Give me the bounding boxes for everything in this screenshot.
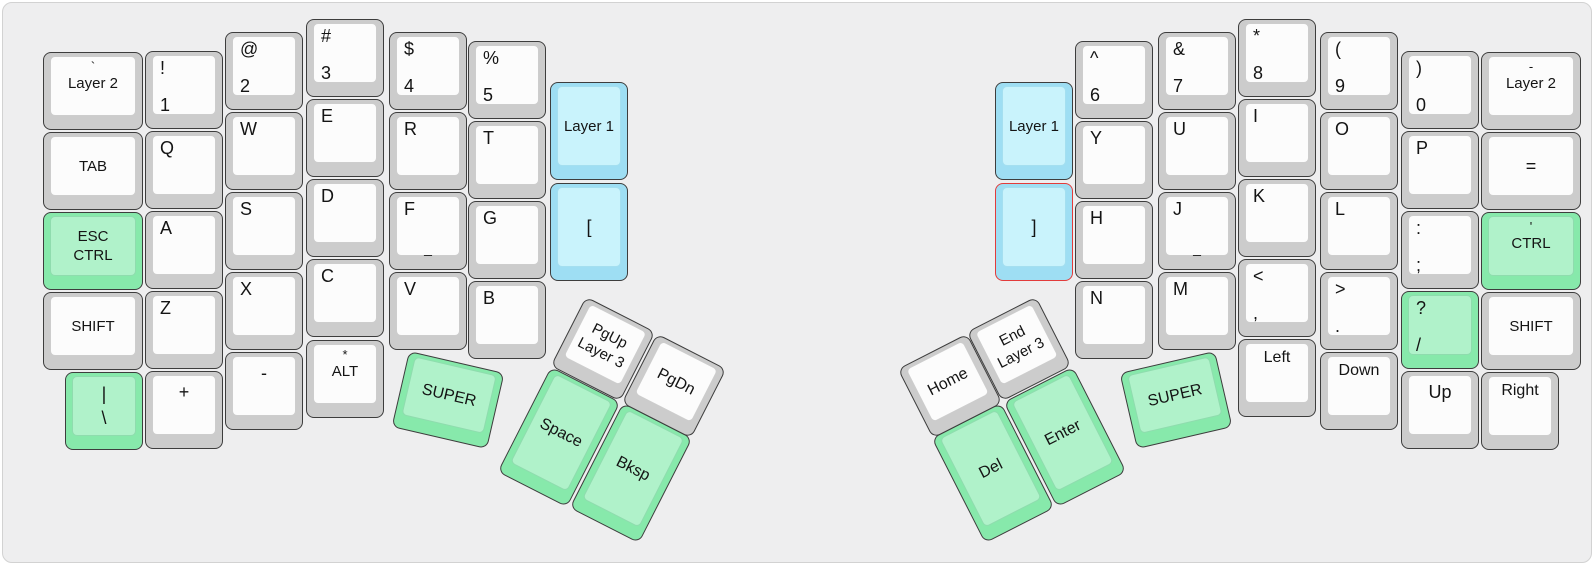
key-plus[interactable]: + [145, 371, 223, 449]
key-legend-line: 0 [1416, 95, 1426, 116]
keycap-top: R [396, 116, 460, 176]
key-legend-line: Left [1264, 348, 1291, 368]
keycap-top: !1 [152, 55, 216, 115]
key-legend: B [483, 288, 495, 309]
keycap-top: #3 [313, 23, 377, 83]
key-shift-right[interactable]: SHIFT [1481, 292, 1581, 370]
key-legend-line: ] [1031, 215, 1036, 239]
key-legend-line: Layer 2 [68, 74, 118, 93]
key-legend: ^6 [1090, 48, 1100, 106]
key-legend: TAB [51, 137, 135, 195]
key-legend-line: 4 [404, 76, 414, 97]
key-legend-line: K [1253, 186, 1265, 207]
key-legend-line: Bksp [613, 452, 653, 485]
key-legend: [ [558, 188, 620, 266]
key-legend: Y [1090, 128, 1102, 149]
key-legend-line: > [1335, 279, 1346, 300]
key-legend: -Layer 2 [1489, 57, 1573, 115]
key-legend-line: \ [101, 406, 106, 430]
key-g[interactable]: G [468, 201, 546, 279]
key-legend-line: Layer 2 [1506, 74, 1556, 93]
keycap-top: T [475, 125, 539, 185]
key-legend-line: ) [1416, 58, 1422, 79]
key-legend: F [404, 199, 415, 220]
key-legend: <, [1253, 266, 1264, 324]
key-legend: H [1090, 208, 1103, 229]
key-legend-line: Home [924, 363, 971, 399]
keycap-top: Layer 1 [1002, 86, 1066, 166]
key-legend: )0 [1416, 58, 1426, 116]
key-legend: Q [160, 138, 174, 159]
key-legend-line: * [1253, 26, 1260, 47]
key-layer1-left[interactable]: Layer 1 [550, 82, 628, 180]
keycap-top: U [1165, 116, 1229, 176]
key-legend-line: SUPER [420, 380, 478, 411]
key-n[interactable]: N [1075, 281, 1153, 359]
key-period[interactable]: >. [1320, 272, 1398, 350]
key-legend-line: F [404, 199, 415, 220]
key-legend: = [1489, 137, 1573, 195]
key-legend: ?/ [1416, 298, 1426, 356]
keycap-top: B [475, 285, 539, 345]
key-k[interactable]: K [1238, 179, 1316, 257]
keycap-top: W [232, 116, 296, 176]
key-z[interactable]: Z [145, 291, 223, 369]
key-super-left[interactable]: SUPER [391, 351, 504, 449]
key-d[interactable]: D [306, 179, 384, 257]
key-legend: ] [1003, 188, 1065, 266]
key-legend-line: P [1416, 138, 1428, 159]
key-legend: J [1173, 199, 1182, 220]
keycap-top: G [475, 205, 539, 265]
key-legend-line: 8 [1253, 63, 1263, 84]
key-legend-line: V [404, 279, 416, 300]
keycap-top: + [152, 375, 216, 435]
key-legend-line: G [483, 208, 497, 229]
key-legend: 'CTRL [1489, 217, 1573, 275]
key-arrow-left[interactable]: Left [1238, 339, 1316, 417]
key-legend-line: 7 [1173, 76, 1183, 97]
keycap-top: Left [1245, 343, 1309, 403]
keycap-top: SHIFT [50, 296, 136, 356]
keycap-top: @2 [232, 36, 296, 96]
key-8[interactable]: *8 [1238, 19, 1316, 97]
keycap-top: X [232, 276, 296, 336]
key-legend-line: CTRL [73, 246, 112, 265]
key-h[interactable]: H [1075, 201, 1153, 279]
key-s[interactable]: S [225, 192, 303, 270]
key-legend-line: 6 [1090, 85, 1100, 106]
key-legend: G [483, 208, 497, 229]
keycap-top: = [1488, 136, 1574, 196]
keycap-top: C [313, 263, 377, 323]
keycap-top: Y [1082, 125, 1146, 185]
keycap-top: J_ [1165, 196, 1229, 256]
key-e[interactable]: E [306, 99, 384, 177]
keycap-top: L [1327, 196, 1391, 256]
key-legend-line: TAB [79, 157, 107, 176]
key-legend: - [233, 357, 295, 415]
key-t[interactable]: T [468, 121, 546, 199]
key-legend: PgDn [635, 342, 717, 422]
key-r[interactable]: R [389, 112, 467, 190]
keycap-top: Down [1327, 356, 1391, 416]
keyboard-layout-canvas: `Layer 2TABESCCTRLSHIFT|\!1QAZ+@2WSX-#3E… [0, 0, 1596, 567]
key-legend-line: X [240, 279, 252, 300]
key-legend-line: Layer 1 [1009, 117, 1059, 136]
key-legend-line: S [240, 199, 252, 220]
key-legend-line: & [1173, 39, 1185, 60]
key-minus[interactable]: - [225, 352, 303, 430]
key-arrow-up[interactable]: Up [1401, 371, 1479, 449]
key-legend-line: O [1335, 119, 1349, 140]
key-legend: R [404, 119, 417, 140]
key-pipe-backslash[interactable]: |\ [65, 372, 143, 450]
key-homing-mark: _ [397, 242, 459, 255]
key-a[interactable]: A [145, 211, 223, 289]
keycap-top: ^6 [1082, 45, 1146, 105]
key-legend-line: ( [1335, 39, 1341, 60]
key-legend-line: C [321, 266, 334, 287]
key-legend: K [1253, 186, 1265, 207]
key-legend: Down [1328, 357, 1390, 415]
key-legend-line: 9 [1335, 76, 1345, 97]
key-legend: C [321, 266, 334, 287]
key-legend: O [1335, 119, 1349, 140]
key-lbracket[interactable]: [ [550, 183, 628, 281]
keycap-top: SUPER [401, 356, 496, 433]
keycap-top: >. [1327, 276, 1391, 336]
key-shift-left[interactable]: SHIFT [43, 292, 143, 370]
keycap-top: - [232, 356, 296, 416]
key-legend-line: , [1253, 303, 1258, 324]
key-legend-line: + [179, 380, 190, 404]
key-layer2-right[interactable]: -Layer 2 [1481, 52, 1581, 130]
key-legend: &7 [1173, 39, 1185, 97]
key-p[interactable]: P [1401, 131, 1479, 209]
keycap-top: -Layer 2 [1488, 56, 1574, 116]
key-rbracket[interactable]: ] [995, 183, 1073, 281]
key-u[interactable]: U [1158, 112, 1236, 190]
key-legend-line: SHIFT [1509, 317, 1552, 336]
key-homing-mark: _ [1166, 242, 1228, 255]
key-legend-line: H [1090, 208, 1103, 229]
key-legend-line: J [1173, 199, 1182, 220]
keycap-top: K [1245, 183, 1309, 243]
keycap-top: EndLayer 3 [975, 303, 1059, 386]
key-legend: Home [907, 342, 989, 422]
keycap-top: PgDn [634, 340, 718, 423]
keycap-top: SUPER [1127, 356, 1222, 433]
key-legend: SHIFT [1489, 297, 1573, 355]
key-5[interactable]: %5 [468, 41, 546, 119]
keycap-top: 'CTRL [1488, 216, 1574, 276]
keycap-top: )0 [1408, 55, 1472, 115]
key-legend: (9 [1335, 39, 1345, 97]
keycap-top: <, [1245, 263, 1309, 323]
keycap-top: `Layer 2 [50, 56, 136, 116]
key-legend: *ALT [314, 345, 376, 403]
keycap-top: Z [152, 295, 216, 355]
key-legend-line: [ [586, 215, 591, 239]
keycap-top: M [1165, 276, 1229, 336]
key-legend-line: SUPER [1146, 380, 1204, 411]
keycap-top: ] [1002, 187, 1066, 267]
key-legend-line: $ [404, 39, 414, 60]
key-legend-line: < [1253, 266, 1264, 287]
key-legend: %5 [483, 48, 499, 106]
key-legend: Z [160, 298, 171, 319]
key-legend-line: CTRL [1511, 234, 1550, 253]
keycap-top: A [152, 215, 216, 275]
key-legend-line: . [1335, 316, 1340, 337]
key-legend: PgUpLayer 3 [564, 305, 646, 385]
key-arrow-down[interactable]: Down [1320, 352, 1398, 430]
keycap-top: D [313, 183, 377, 243]
key-legend-small: - [1529, 59, 1533, 74]
key-7[interactable]: &7 [1158, 32, 1236, 110]
key-legend-line: = [1526, 154, 1537, 178]
keycap-top: V [396, 276, 460, 336]
keyboard-panel: `Layer 2TABESCCTRLSHIFT|\!1QAZ+@2WSX-#3E… [2, 2, 1592, 563]
key-legend: >. [1335, 279, 1346, 337]
key-legend-line: Right [1501, 381, 1538, 401]
key-legend: Right [1489, 377, 1551, 435]
key-legend: M [1173, 279, 1188, 300]
key-legend-line: Down [1339, 361, 1380, 381]
key-alt[interactable]: *ALT [306, 340, 384, 418]
keycap-top: Q [152, 135, 216, 195]
key-legend-line: U [1173, 119, 1186, 140]
key-v[interactable]: V [389, 272, 467, 350]
key-i[interactable]: I [1238, 99, 1316, 177]
key-legend-line: A [160, 218, 172, 239]
key-legend: V [404, 279, 416, 300]
key-2[interactable]: @2 [225, 32, 303, 110]
key-esc-ctrl[interactable]: ESCCTRL [43, 212, 143, 290]
key-legend: E [321, 106, 333, 127]
keycap-top: %5 [475, 45, 539, 105]
keycap-top: [ [557, 187, 621, 267]
key-q[interactable]: Q [145, 131, 223, 209]
key-legend: |\ [73, 377, 135, 435]
key-super-right[interactable]: SUPER [1119, 351, 1232, 449]
key-legend: A [160, 218, 172, 239]
keycap-top: H [1082, 205, 1146, 265]
key-legend: SHIFT [51, 297, 135, 355]
key-legend: Layer 1 [1003, 87, 1065, 165]
keycap-top: ESCCTRL [50, 216, 136, 276]
key-legend-line: SHIFT [71, 317, 114, 336]
key-legend-line: PgDn [654, 364, 698, 399]
key-j[interactable]: J_ [1158, 192, 1236, 270]
key-legend-line: Up [1428, 380, 1451, 404]
key-legend-line: 1 [160, 95, 170, 116]
keycap-top: P [1408, 135, 1472, 195]
key-legend: !1 [160, 58, 170, 116]
key-legend-line: M [1173, 279, 1188, 300]
keycap-top: SHIFT [1488, 296, 1574, 356]
key-legend: I [1253, 106, 1258, 127]
keycap-top: S [232, 196, 296, 256]
keycap-top: $4 [396, 36, 460, 96]
key-layer2-left[interactable]: `Layer 2 [43, 52, 143, 130]
key-legend: #3 [321, 26, 331, 84]
key-legend: X [240, 279, 252, 300]
key-legend: EndLayer 3 [976, 305, 1058, 385]
key-tab[interactable]: TAB [43, 132, 143, 210]
key-legend-line: Layer 1 [564, 117, 614, 136]
key-legend-small: * [342, 347, 347, 362]
key-legend: Left [1246, 344, 1308, 402]
key-legend-line: N [1090, 288, 1103, 309]
key-legend-line: ? [1416, 298, 1426, 319]
key-legend-line: % [483, 48, 499, 69]
key-equals[interactable]: = [1481, 132, 1581, 210]
key-legend-line: R [404, 119, 417, 140]
key-legend: SUPER [403, 358, 496, 433]
key-legend-line: T [483, 128, 494, 149]
key-b[interactable]: B [468, 281, 546, 359]
key-legend-line: Del [976, 455, 1006, 483]
keycap-top: &7 [1165, 36, 1229, 96]
key-legend-line: @ [240, 39, 258, 60]
key-layer1-right[interactable]: Layer 1 [995, 82, 1073, 180]
key-legend-line: / [1416, 335, 1421, 356]
key-1[interactable]: !1 [145, 51, 223, 129]
key-legend-line: Y [1090, 128, 1102, 149]
key-y[interactable]: Y [1075, 121, 1153, 199]
keycap-top: I [1245, 103, 1309, 163]
key-legend: N [1090, 288, 1103, 309]
key-legend-line: B [483, 288, 495, 309]
key-legend: S [240, 199, 252, 220]
keycap-top: |\ [72, 376, 136, 436]
key-3[interactable]: #3 [306, 19, 384, 97]
key-w[interactable]: W [225, 112, 303, 190]
keycap-top: PgUpLayer 3 [563, 303, 647, 386]
key-legend: D [321, 186, 334, 207]
key-legend-line: L [1335, 199, 1345, 220]
key-legend-line: E [321, 106, 333, 127]
keycap-top: N [1082, 285, 1146, 345]
key-6[interactable]: ^6 [1075, 41, 1153, 119]
keycap-top: O [1327, 116, 1391, 176]
key-legend-line: D [321, 186, 334, 207]
key-legend-line: Q [160, 138, 174, 159]
key-legend: Layer 1 [558, 87, 620, 165]
key-legend-line: I [1253, 106, 1258, 127]
key-4[interactable]: $4 [389, 32, 467, 110]
key-legend: T [483, 128, 494, 149]
key-legend: :; [1416, 218, 1421, 276]
key-l[interactable]: L [1320, 192, 1398, 270]
key-legend-line: ^ [1090, 48, 1098, 69]
key-legend: Up [1409, 376, 1471, 434]
key-c[interactable]: C [306, 259, 384, 337]
key-x[interactable]: X [225, 272, 303, 350]
key-legend: `Layer 2 [51, 57, 135, 115]
key-legend: @2 [240, 39, 258, 97]
keycap-top: Up [1408, 375, 1472, 435]
keycap-top: ?/ [1408, 295, 1472, 355]
key-legend-line: : [1416, 218, 1421, 239]
key-legend-small: ` [91, 59, 95, 74]
key-legend: *8 [1253, 26, 1263, 84]
key-comma[interactable]: <, [1238, 259, 1316, 337]
key-legend-line: 5 [483, 85, 493, 106]
key-semicolon[interactable]: :; [1401, 211, 1479, 289]
keycap-top: *ALT [313, 344, 377, 404]
key-legend-line: ALT [332, 362, 358, 381]
keycap-top: Right [1488, 376, 1552, 436]
key-arrow-right[interactable]: Right [1481, 372, 1559, 450]
keycap-top: F_ [396, 196, 460, 256]
keycap-top: *8 [1245, 23, 1309, 83]
key-legend-line: ! [160, 58, 165, 79]
key-legend-line: ESC [78, 227, 109, 246]
key-legend-line: ; [1416, 255, 1421, 276]
key-0[interactable]: )0 [1401, 51, 1479, 129]
keycap-top: (9 [1327, 36, 1391, 96]
key-legend-line: Z [160, 298, 171, 319]
keycap-top: :; [1408, 215, 1472, 275]
key-legend-small: ' [1530, 219, 1532, 234]
key-legend: P [1416, 138, 1428, 159]
key-legend-line: W [240, 119, 257, 140]
key-legend: L [1335, 199, 1345, 220]
keycap-top: E [313, 103, 377, 163]
key-legend: ESCCTRL [51, 217, 135, 275]
key-legend: W [240, 119, 257, 140]
key-slash[interactable]: ?/ [1401, 291, 1479, 369]
key-legend-line: Enter [1041, 415, 1084, 449]
key-legend: $4 [404, 39, 414, 97]
key-f[interactable]: F_ [389, 192, 467, 270]
key-legend-line: | [102, 382, 107, 406]
key-legend: U [1173, 119, 1186, 140]
key-legend-line: Space [537, 414, 586, 452]
keycap-top: Layer 1 [557, 86, 621, 166]
key-legend: + [153, 376, 215, 434]
key-legend: SUPER [1128, 358, 1221, 433]
keycap-top: TAB [50, 136, 136, 196]
key-legend-line: # [321, 26, 331, 47]
key-o[interactable]: O [1320, 112, 1398, 190]
key-m[interactable]: M [1158, 272, 1236, 350]
key-9[interactable]: (9 [1320, 32, 1398, 110]
key-legend-line: 3 [321, 63, 331, 84]
key-legend-line: 2 [240, 76, 250, 97]
key-quote-ctrl[interactable]: 'CTRL [1481, 212, 1581, 290]
key-legend-line: - [261, 361, 267, 385]
